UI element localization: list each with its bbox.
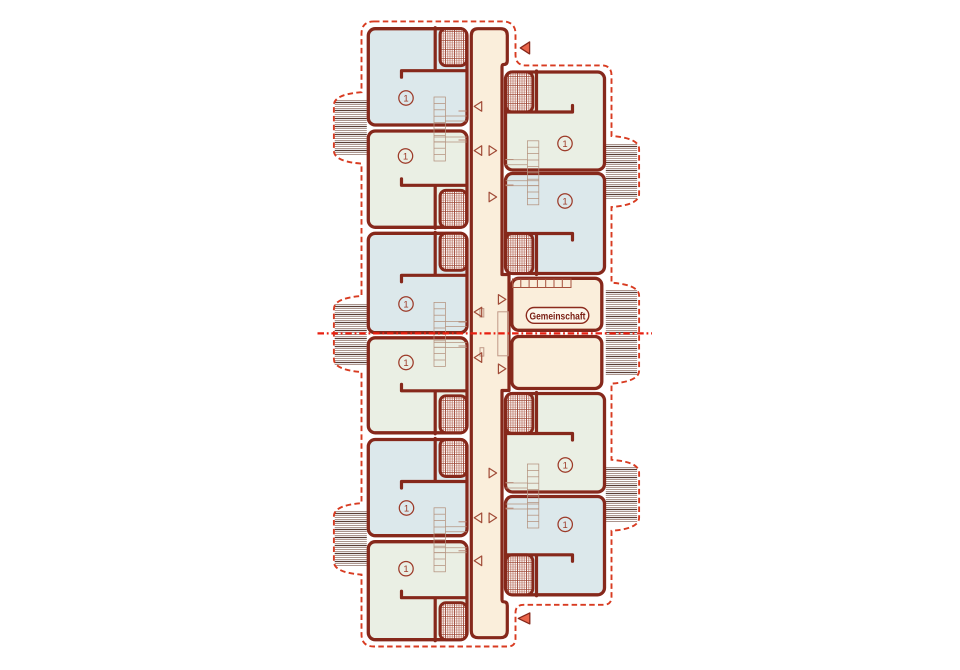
svg-text:1: 1 [403,299,408,310]
svg-text:1: 1 [403,564,408,575]
svg-text:1: 1 [403,358,408,369]
svg-text:1: 1 [403,151,408,162]
svg-text:1: 1 [404,503,409,514]
svg-text:1: 1 [563,460,568,471]
svg-text:1: 1 [403,93,408,104]
svg-text:1: 1 [563,520,568,531]
svg-text:1: 1 [562,196,567,207]
svg-text:1: 1 [562,139,567,150]
svg-text:Gemeinschaft: Gemeinschaft [530,311,587,322]
